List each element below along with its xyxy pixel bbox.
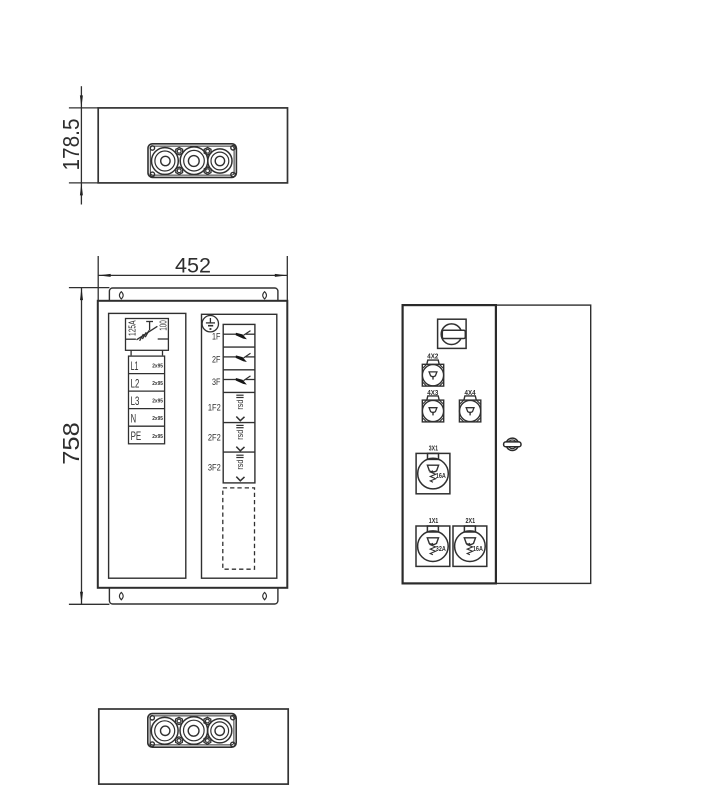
svg-text:2x95: 2x95 xyxy=(152,363,163,369)
svg-text:178.5: 178.5 xyxy=(58,119,84,171)
svg-text:3F: 3F xyxy=(212,377,221,388)
svg-text:rsd: rsd xyxy=(235,400,246,410)
svg-text:rsd: rsd xyxy=(235,430,246,440)
svg-text:2F: 2F xyxy=(212,354,221,365)
svg-text:2F2: 2F2 xyxy=(208,433,221,443)
svg-text:4X2: 4X2 xyxy=(427,353,438,360)
svg-text:2x95: 2x95 xyxy=(152,398,163,404)
svg-text:L3: L3 xyxy=(131,394,140,408)
svg-text:2x95: 2x95 xyxy=(152,434,163,440)
svg-text:16A: 16A xyxy=(473,546,483,553)
svg-text:452: 452 xyxy=(175,253,211,277)
svg-text:L1: L1 xyxy=(131,359,139,373)
svg-text:3F2: 3F2 xyxy=(208,463,221,473)
svg-text:1X1: 1X1 xyxy=(429,518,439,525)
svg-text:1F2: 1F2 xyxy=(208,402,221,412)
svg-text:100: 100 xyxy=(157,320,169,331)
svg-text:125A: 125A xyxy=(126,320,138,336)
svg-text:1F: 1F xyxy=(212,332,221,343)
svg-text:rsd: rsd xyxy=(235,460,246,470)
svg-text:758: 758 xyxy=(58,422,84,465)
svg-text:PE: PE xyxy=(131,429,142,443)
svg-text:L2: L2 xyxy=(131,377,140,391)
svg-text:2x95: 2x95 xyxy=(152,381,163,387)
svg-text:16A: 16A xyxy=(436,473,446,480)
svg-text:2x95: 2x95 xyxy=(152,416,163,422)
svg-text:2X1: 2X1 xyxy=(466,518,476,525)
svg-text:3X1: 3X1 xyxy=(429,445,438,452)
svg-text:32A: 32A xyxy=(436,546,446,553)
svg-text:N: N xyxy=(131,412,137,426)
